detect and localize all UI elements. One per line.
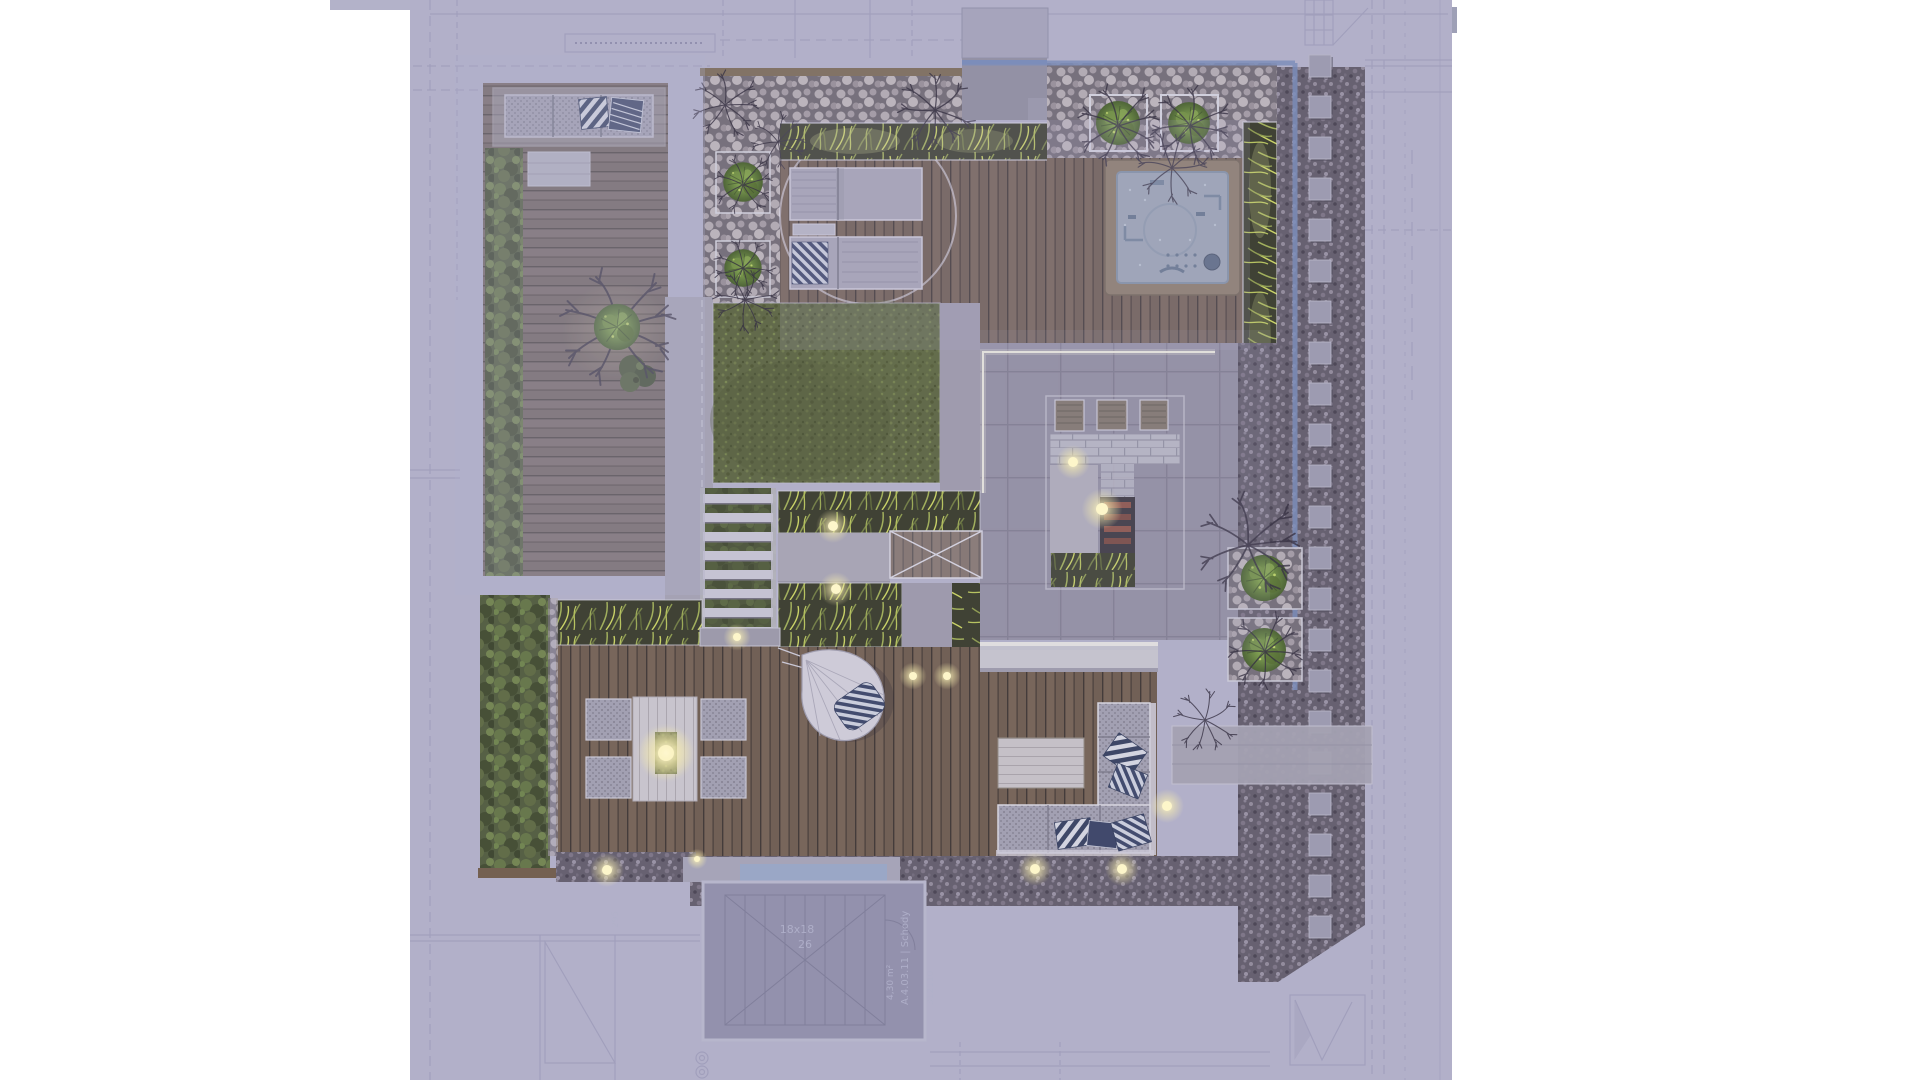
terrace-plan-stage: 18x18 26 A.4.03.11 | Schody 4,30 m² 3121… bbox=[0, 0, 1920, 1080]
lavender-washes bbox=[410, 0, 1452, 1080]
edge-artifact bbox=[1452, 7, 1457, 33]
terrace-plan-svg: 18x18 26 A.4.03.11 | Schody 4,30 m² 3121… bbox=[0, 0, 1920, 1080]
